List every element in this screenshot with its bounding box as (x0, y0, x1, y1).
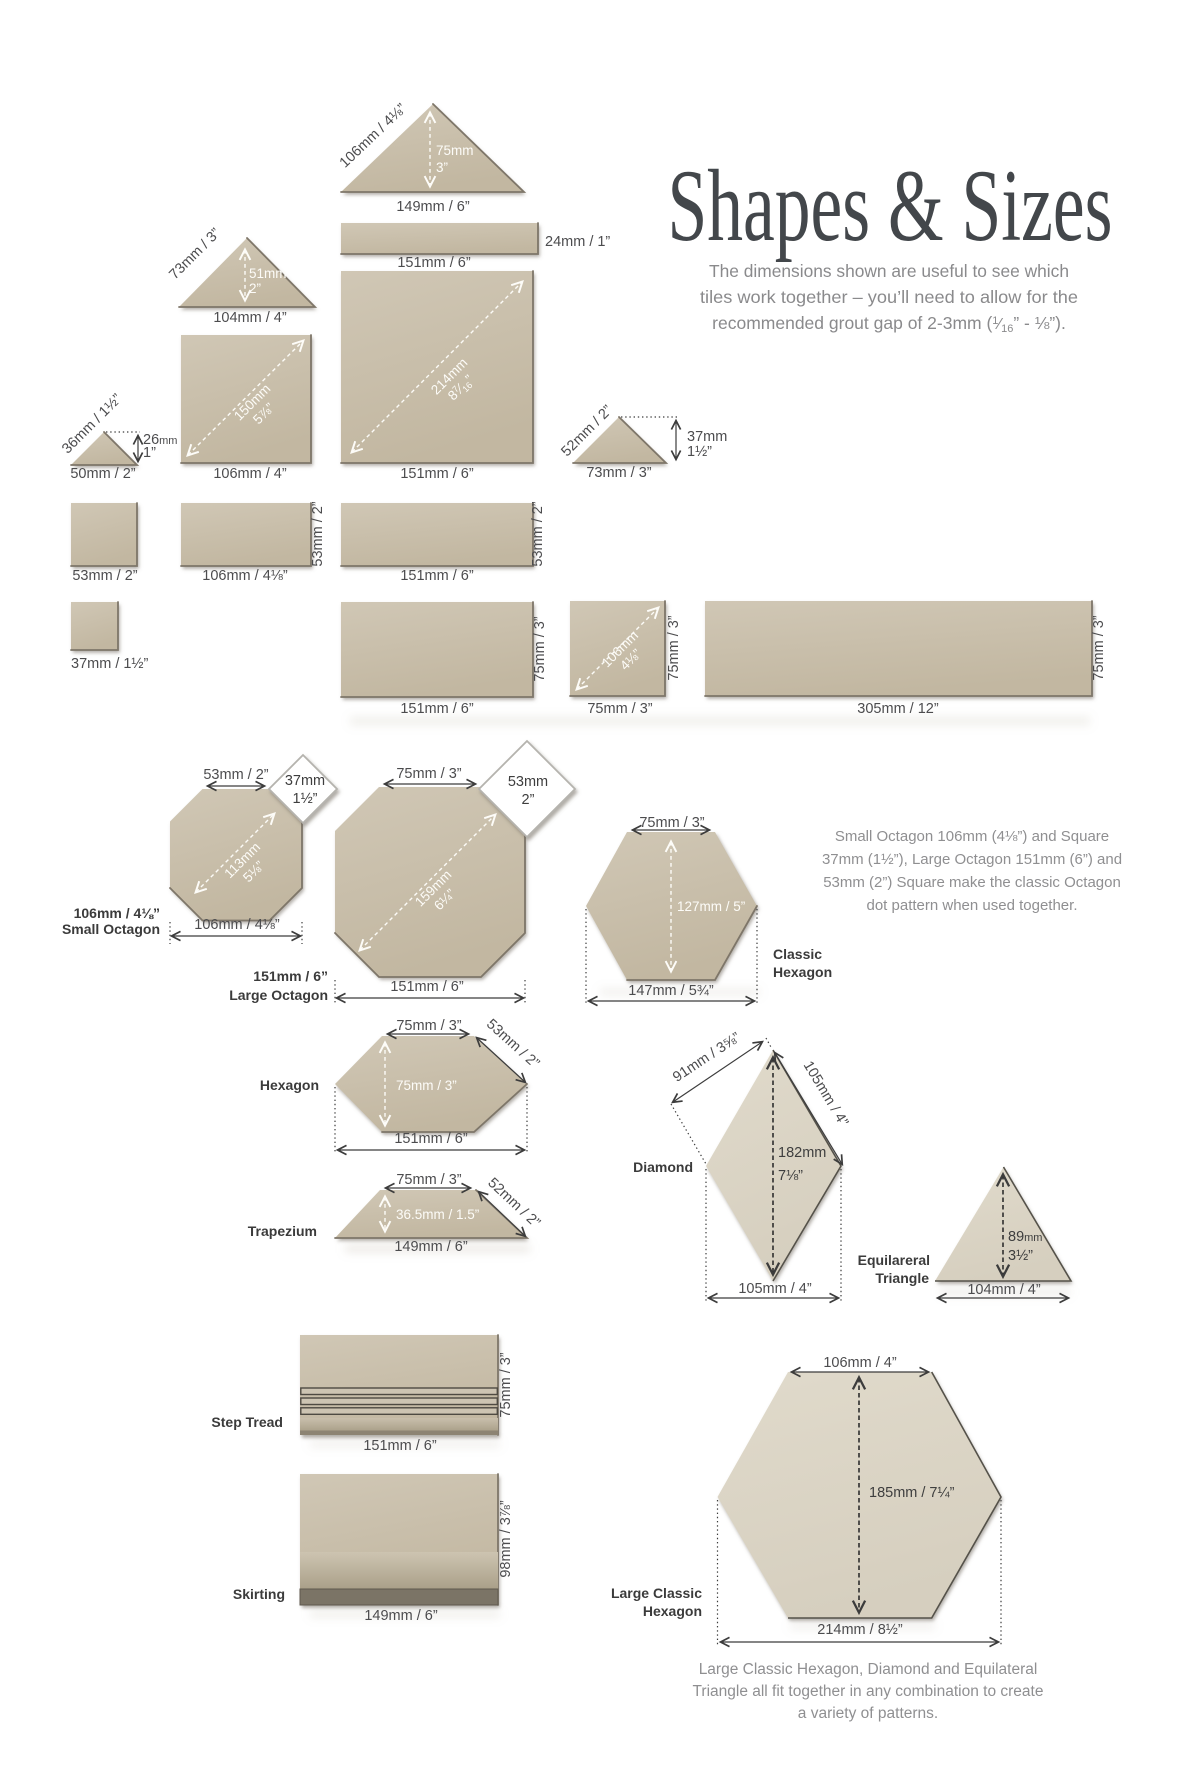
svg-text:24mm / 1”: 24mm / 1” (545, 234, 610, 250)
svg-text:75mm / 3”: 75mm / 3” (396, 766, 461, 782)
svg-text:89mm: 89mm (1008, 1229, 1042, 1245)
svg-text:7⅛”: 7⅛” (778, 1168, 803, 1184)
svg-text:tiles work together – you’ll n: tiles work together – you’ll need to all… (700, 287, 1078, 307)
svg-text:75mm / 3”: 75mm / 3” (396, 1018, 461, 1034)
svg-text:Large Classic Hexagon, Diamond: Large Classic Hexagon, Diamond and Equil… (699, 1661, 1038, 1678)
svg-text:37mm: 37mm (285, 773, 325, 789)
svg-text:53mm / 2”: 53mm / 2” (203, 767, 268, 783)
svg-text:Step Tread: Step Tread (211, 1414, 283, 1430)
svg-text:127mm / 5”: 127mm / 5” (677, 899, 745, 914)
svg-text:2”: 2” (249, 281, 261, 296)
svg-text:3½”: 3½” (1008, 1248, 1033, 1264)
svg-text:75mm / 3”: 75mm / 3” (1091, 615, 1107, 680)
svg-text:Shapes & Sizes: Shapes & Sizes (668, 149, 1113, 263)
svg-text:106mm / 4”: 106mm / 4” (213, 466, 286, 482)
svg-text:1½”: 1½” (687, 444, 712, 460)
svg-text:Small Octagon 106mm (4⅛”) and: Small Octagon 106mm (4⅛”) and Square (835, 828, 1109, 845)
svg-text:Large Classic: Large Classic (611, 1585, 702, 1601)
svg-text:a variety of patterns.: a variety of patterns. (798, 1705, 938, 1722)
svg-text:75mm / 3”: 75mm / 3” (639, 815, 704, 831)
svg-text:151mm / 6”: 151mm / 6” (253, 968, 328, 984)
svg-text:75mm / 3”: 75mm / 3” (532, 616, 548, 681)
svg-text:75mm / 3”: 75mm / 3” (666, 615, 682, 680)
svg-text:53mm (2”) Square make the clas: 53mm (2”) Square make the classic Octago… (823, 874, 1121, 891)
svg-text:dot pattern when used together: dot pattern when used together. (867, 897, 1078, 914)
svg-text:151mm / 6”: 151mm / 6” (400, 701, 473, 717)
svg-text:Small Octagon: Small Octagon (62, 921, 160, 937)
svg-text:106mm / 4⅛”: 106mm / 4⅛” (202, 568, 288, 584)
svg-text:51mm: 51mm (249, 266, 287, 281)
svg-text:53mm / 2”: 53mm / 2” (72, 568, 137, 584)
svg-text:36.5mm / 1.5”: 36.5mm / 1.5” (396, 1207, 479, 1222)
svg-text:75mm / 3”: 75mm / 3” (396, 1172, 461, 1188)
svg-text:53mm: 53mm (508, 774, 548, 790)
svg-text:147mm / 5¾”: 147mm / 5¾” (628, 983, 714, 999)
svg-text:106mm / 4”: 106mm / 4” (823, 1355, 896, 1371)
svg-text:1”: 1” (143, 445, 156, 461)
svg-text:106mm / 4⅛”: 106mm / 4⅛” (74, 905, 160, 921)
svg-text:151mm / 6”: 151mm / 6” (400, 466, 473, 482)
svg-text:Hexagon: Hexagon (260, 1077, 319, 1093)
svg-text:75mm / 3”: 75mm / 3” (396, 1078, 457, 1093)
svg-text:75mm / 3”: 75mm / 3” (498, 1352, 514, 1417)
svg-text:53mm / 2”: 53mm / 2” (530, 501, 546, 566)
svg-text:Trapezium: Trapezium (248, 1223, 317, 1239)
svg-text:Classic: Classic (773, 946, 822, 962)
svg-text:105mm / 4”: 105mm / 4” (738, 1281, 811, 1297)
svg-text:Hexagon: Hexagon (773, 964, 832, 980)
svg-text:37mm / 1½”: 37mm / 1½” (71, 656, 149, 672)
svg-text:75mm / 3”: 75mm / 3” (587, 701, 652, 717)
svg-text:Hexagon: Hexagon (643, 1603, 702, 1619)
svg-text:104mm / 4”: 104mm / 4” (967, 1282, 1040, 1298)
svg-text:151mm / 6”: 151mm / 6” (390, 979, 463, 995)
svg-text:3”: 3” (436, 160, 448, 175)
svg-text:151mm / 6”: 151mm / 6” (363, 1438, 436, 1454)
svg-text:The dimensions shown are usefu: The dimensions shown are useful to see w… (709, 261, 1069, 281)
svg-text:Large Octagon: Large Octagon (229, 987, 328, 1003)
svg-text:106mm / 4⅛”: 106mm / 4⅛” (194, 917, 280, 933)
svg-text:Equilareral: Equilareral (858, 1252, 930, 1268)
svg-text:Triangle: Triangle (875, 1270, 929, 1286)
svg-text:50mm / 2”: 50mm / 2” (70, 466, 135, 482)
svg-text:73mm / 3”: 73mm / 3” (586, 465, 651, 481)
svg-text:151mm / 6”: 151mm / 6” (394, 1131, 467, 1147)
svg-text:1½”: 1½” (293, 791, 318, 807)
svg-text:recommended grout gap of 2-3mm: recommended grout gap of 2-3mm (1⁄16” - … (712, 313, 1066, 335)
svg-text:Diamond: Diamond (633, 1159, 693, 1175)
svg-text:53mm / 2”: 53mm / 2” (310, 501, 326, 566)
svg-text:149mm / 6”: 149mm / 6” (394, 1239, 467, 1255)
svg-text:2”: 2” (522, 792, 535, 808)
svg-text:98mm / 3⅞”: 98mm / 3⅞” (498, 1500, 514, 1578)
svg-text:151mm / 6”: 151mm / 6” (397, 255, 470, 271)
svg-text:305mm / 12”: 305mm / 12” (857, 701, 939, 717)
svg-text:75mm: 75mm (436, 143, 474, 158)
svg-text:37mm (1½”), Large Octagon 151m: 37mm (1½”), Large Octagon 151mm (6”) and (822, 851, 1122, 868)
svg-text:185mm / 7¼”: 185mm / 7¼” (869, 1485, 955, 1501)
svg-text:Skirting: Skirting (233, 1586, 285, 1602)
svg-text:214mm / 8½”: 214mm / 8½” (817, 1622, 903, 1638)
svg-text:182mm: 182mm (778, 1145, 826, 1161)
svg-text:Triangle all fit together in a: Triangle all fit together in any combina… (693, 1683, 1044, 1700)
svg-text:37mm: 37mm (687, 429, 727, 445)
svg-text:151mm / 6”: 151mm / 6” (400, 568, 473, 584)
svg-text:149mm / 6”: 149mm / 6” (364, 1608, 437, 1624)
svg-text:104mm / 4”: 104mm / 4” (213, 310, 286, 326)
svg-text:149mm / 6”: 149mm / 6” (396, 199, 469, 215)
